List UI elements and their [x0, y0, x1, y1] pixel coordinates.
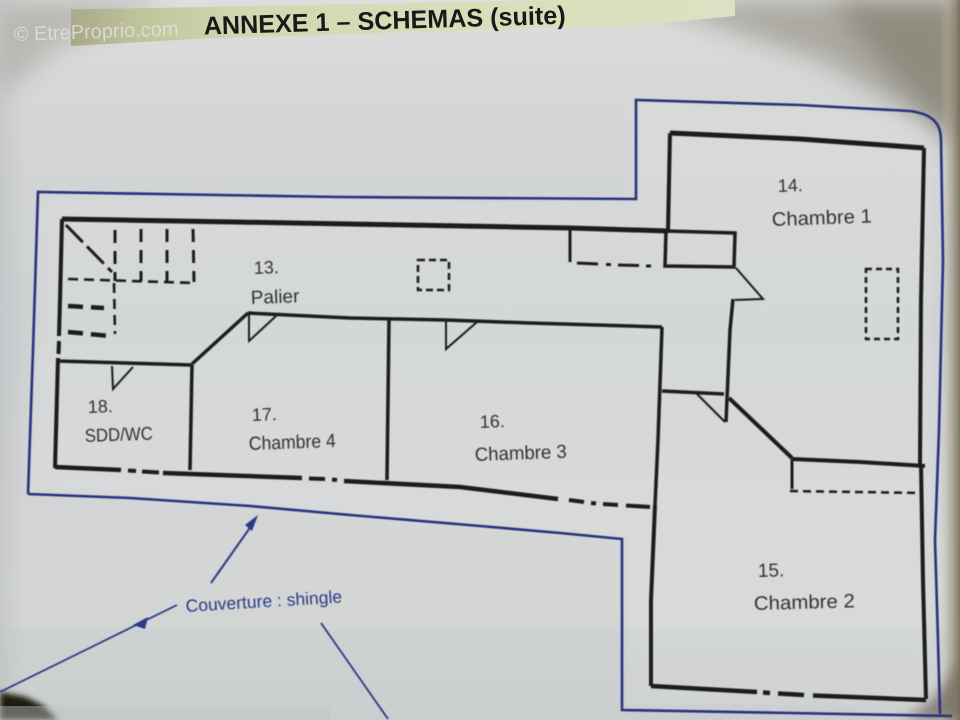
- svg-text:15.: 15.: [758, 560, 785, 582]
- svg-text:18.: 18.: [87, 396, 113, 417]
- svg-text:14.: 14.: [777, 175, 803, 196]
- svg-text:Palier: Palier: [250, 286, 300, 309]
- svg-text:16.: 16.: [479, 411, 505, 432]
- svg-text:17.: 17.: [251, 404, 277, 425]
- svg-text:13.: 13.: [253, 257, 279, 278]
- svg-text:Chambre 1: Chambre 1: [771, 206, 872, 231]
- svg-text:Chambre 3: Chambre 3: [474, 442, 567, 466]
- svg-text:Chambre 2: Chambre 2: [754, 590, 856, 615]
- svg-text:Chambre 4: Chambre 4: [248, 431, 336, 455]
- svg-text:SDD/WC: SDD/WC: [84, 423, 153, 446]
